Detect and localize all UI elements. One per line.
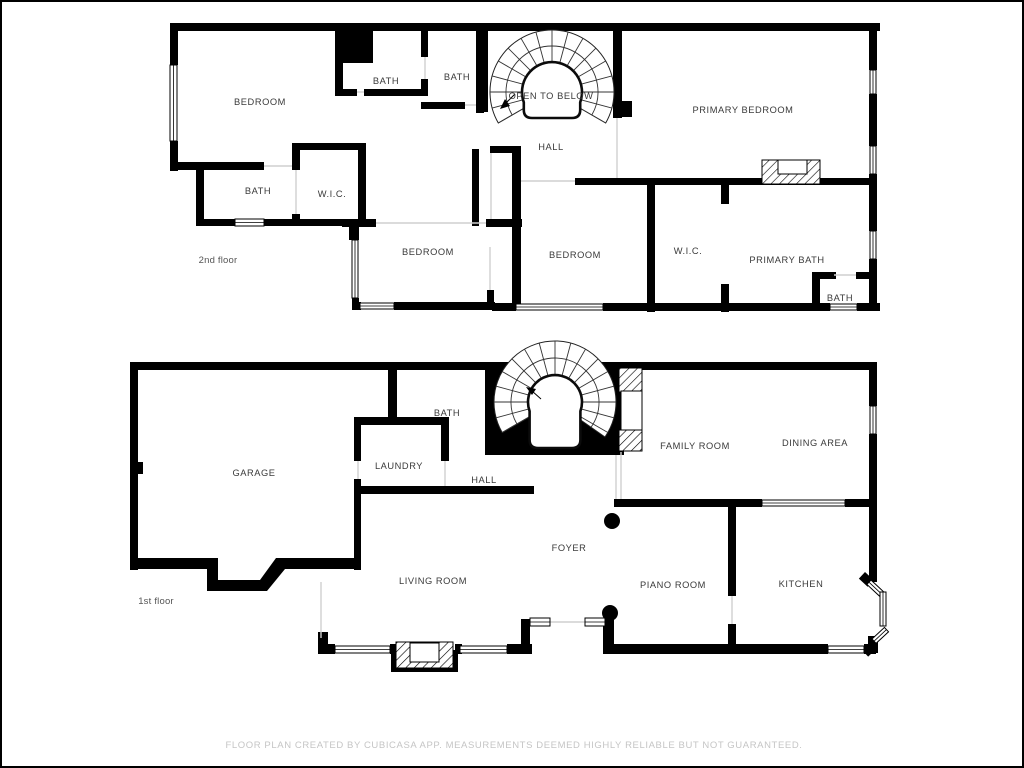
stair-inner-rail-first-floor (528, 375, 582, 448)
column-foyer-bottom (602, 605, 618, 621)
first-floor-plan: GARAGE BATH LAUNDRY HALL FAMILY ROOM DIN… (130, 341, 889, 672)
room-label-primary-bedroom: PRIMARY BEDROOM (693, 105, 794, 115)
first-floor-doors (321, 452, 732, 638)
room-label-bedroom-right: BEDROOM (549, 250, 601, 260)
footer-disclaimer: FLOOR PLAN CREATED BY CUBICASA APP. MEAS… (225, 740, 802, 751)
room-label-open-to-below: OPEN TO BELOW (509, 91, 594, 101)
fireplace-living-room (396, 642, 453, 668)
room-label-bedroom-middle: BEDROOM (402, 247, 454, 257)
room-label-wic-1: W.I.C. (318, 189, 347, 199)
column-foyer-top (604, 513, 620, 529)
room-label-hall-first: HALL (471, 475, 496, 485)
fireplace-primary-bedroom (762, 160, 820, 184)
room-label-laundry: LAUNDRY (375, 461, 423, 471)
room-label-bath-first: BATH (434, 408, 460, 418)
room-label-bath-top-1: BATH (373, 76, 399, 86)
room-label-bath-2: BATH (245, 186, 271, 196)
room-label-dining-area: DINING AREA (782, 438, 848, 448)
first-floor-label: 1st floor (138, 596, 174, 607)
fireplace-family-room-chimney (619, 368, 642, 451)
room-label-foyer: FOYER (552, 543, 587, 553)
room-label-bath-3: BATH (827, 293, 853, 303)
room-label-primary-bath: PRIMARY BATH (749, 255, 824, 265)
floor-plan-canvas: BEDROOM BATH BATH OPEN TO BELOW PRIMARY … (2, 2, 1024, 768)
second-floor-label: 2nd floor (199, 255, 238, 266)
room-label-family-room: FAMILY ROOM (660, 441, 730, 451)
room-label-bath-top-2: BATH (444, 72, 470, 82)
room-label-living-room: LIVING ROOM (399, 576, 467, 586)
room-label-garage: GARAGE (232, 468, 275, 478)
room-label-kitchen: KITCHEN (779, 579, 824, 589)
room-label-wic-2: W.I.C. (674, 246, 703, 256)
room-label-hall-second: HALL (538, 142, 563, 152)
room-label-piano-room: PIANO ROOM (640, 580, 706, 590)
room-label-bedroom-left: BEDROOM (234, 97, 286, 107)
second-floor-plan: BEDROOM BATH BATH OPEN TO BELOW PRIMARY … (170, 23, 880, 312)
floor-plan-page: BEDROOM BATH BATH OPEN TO BELOW PRIMARY … (0, 0, 1024, 768)
